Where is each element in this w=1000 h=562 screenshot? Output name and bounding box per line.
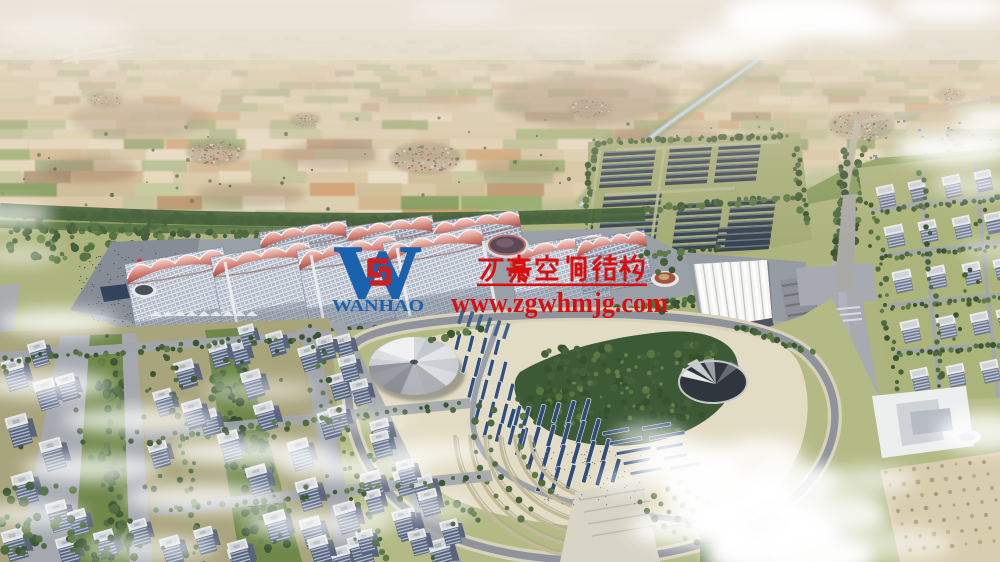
svg-text:WANHAO: WANHAO (332, 296, 424, 315)
svg-text:www.zgwhmjg.com: www.zgwhmjg.com (451, 288, 668, 319)
